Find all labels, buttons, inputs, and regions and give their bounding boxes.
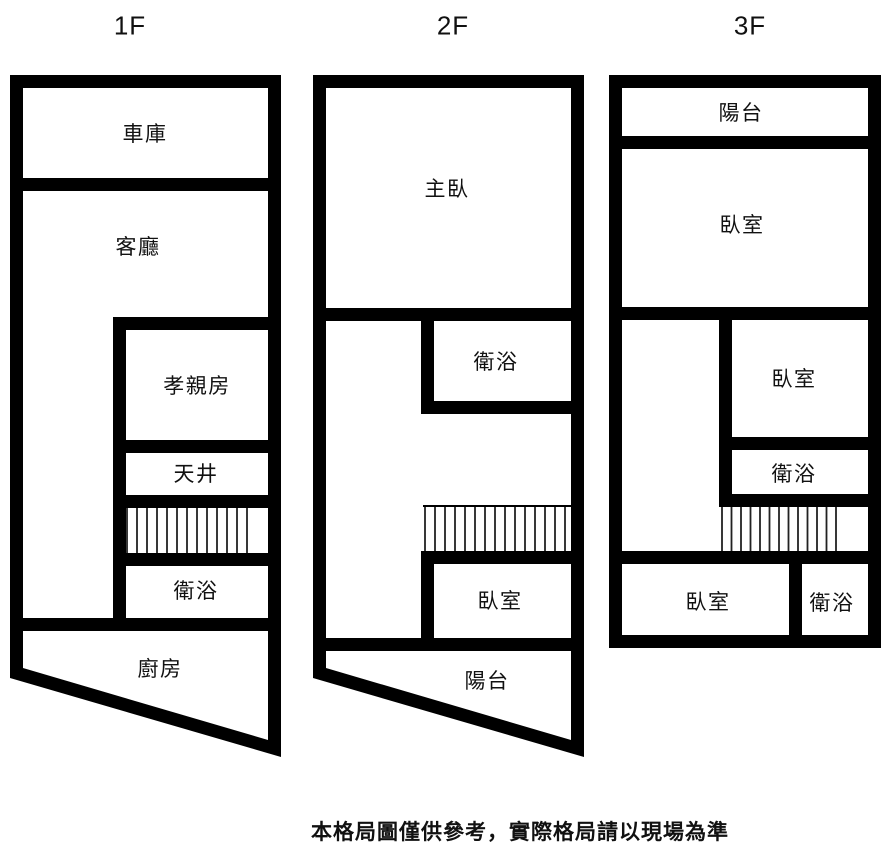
2f-wall-stairs-bottom [421,551,584,564]
room-label-bedroom1-3f: 臥室 [720,209,765,239]
room-label-garage: 車庫 [123,118,168,148]
2f-wall-master-bottom [326,308,571,321]
3f-wall-center-divider [719,307,732,507]
1f-wall-innerbox-top [113,317,268,330]
3f-wall-balcony-bottom [622,136,868,149]
2f-wall-bath-left [421,308,434,413]
room-label-bathroom-2f: 衛浴 [474,346,519,376]
1f-wall-stairs-bottom [113,553,268,566]
2f-wall-bedroom-left [421,551,434,651]
room-label-atrium: 天井 [174,458,219,488]
1f-wall-garage-divider [23,178,268,191]
room-label-bathroom2-3f: 衛浴 [810,587,855,617]
floor-title-3f: 3F [734,11,766,42]
room-label-balcony-3f: 陽台 [719,97,764,127]
floor-3f-plan [609,75,881,648]
room-label-bedroom3-3f: 臥室 [686,586,731,616]
room-label-living-room: 客廳 [116,231,161,261]
2f-wall-bath-bottom [421,401,571,414]
room-label-parents-room: 孝親房 [163,370,231,400]
room-label-bedroom-2f: 臥室 [478,585,523,615]
2f-stairs-top-line [423,505,571,507]
disclaimer-text: 本格局圖僅供參考，實際格局請以現場為準 [311,816,729,846]
room-label-bathroom1-3f: 衛浴 [772,458,817,488]
floor-title-2f: 2F [437,11,469,42]
1f-wall-kitchen-top [23,618,268,631]
3f-wall-stairs-bottom [622,551,868,564]
floor-title-1f: 1F [114,11,146,42]
1f-wall-parents-room-bottom [126,440,268,453]
1f-wall-innerbox-left [113,317,126,630]
3f-wall-bath1-bottom [719,494,868,507]
room-label-master-bedroom: 主臥 [425,173,470,203]
2f-wall-balcony-top [326,638,571,651]
room-label-balcony-2f: 陽台 [465,665,510,695]
3f-wall-bottom-divider [789,564,802,635]
3f-wall-bedroom2-bottom [719,437,868,450]
1f-wall-atrium-bottom [126,495,268,508]
floorplan-canvas: 1F 2F 3F 車庫 客廳 孝親房 天井 衛浴 廚房 主臥 衛浴 臥室 陽台 … [0,0,889,855]
3f-wall-bedroom1-bottom [622,307,868,320]
room-label-bathroom-1f: 衛浴 [174,575,219,605]
room-label-kitchen: 廚房 [138,653,183,683]
room-label-bedroom2-3f: 臥室 [772,363,817,393]
